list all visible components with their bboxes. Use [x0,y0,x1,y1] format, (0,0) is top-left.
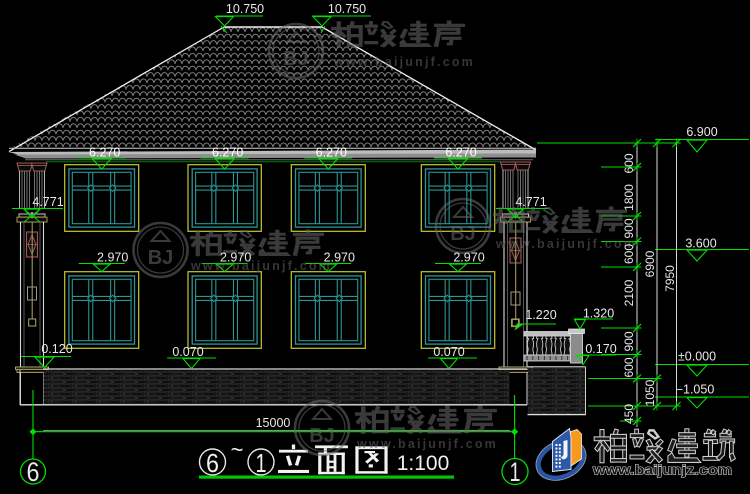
svg-text:2.970: 2.970 [97,251,128,265]
svg-text:−1.050: −1.050 [676,383,715,397]
svg-text:6.270: 6.270 [445,146,476,160]
svg-text:1800: 1800 [622,184,636,211]
svg-text:www.baijunjz.com: www.baijunjz.com [592,462,732,478]
svg-text:www.baijunjf.com: www.baijunjf.com [356,437,498,451]
svg-text:6.270: 6.270 [316,146,347,160]
svg-text:900: 900 [622,331,636,351]
svg-text:1: 1 [510,457,521,487]
svg-text:600: 600 [622,153,636,173]
svg-text:2.970: 2.970 [453,251,484,265]
svg-text:BJ: BJ [148,247,174,269]
svg-text:BJ: BJ [309,425,335,447]
svg-text:~: ~ [231,437,244,462]
svg-text:4.771: 4.771 [32,195,63,209]
svg-text:6: 6 [27,457,40,487]
svg-text:www.baijunjf.com: www.baijunjf.com [333,55,475,69]
svg-text:1050: 1050 [643,379,657,406]
svg-text:BJ: BJ [283,48,309,70]
svg-text:±0.000: ±0.000 [678,350,716,364]
svg-text:10.750: 10.750 [328,2,366,16]
svg-text:450: 450 [622,404,636,424]
svg-text:600: 600 [622,357,636,377]
svg-text:www.baijunjf.com: www.baijunjf.com [190,259,332,273]
svg-text:10.750: 10.750 [226,2,264,16]
svg-text:BJ: BJ [450,223,476,245]
svg-text:6.900: 6.900 [686,125,717,139]
svg-text:3.600: 3.600 [685,237,716,251]
svg-text:6: 6 [206,448,219,478]
svg-text:0.170: 0.170 [585,342,616,356]
svg-text:0.120: 0.120 [41,342,72,356]
svg-text:900: 900 [622,218,636,238]
svg-text:4.771: 4.771 [515,195,546,209]
svg-text:0.070: 0.070 [433,345,464,359]
svg-text:6.270: 6.270 [212,146,243,160]
svg-text:1.320: 1.320 [583,307,614,321]
svg-text:0.070: 0.070 [172,345,203,359]
svg-text:600: 600 [622,244,636,264]
svg-text:6900: 6900 [643,250,657,277]
svg-text:15000: 15000 [256,416,291,430]
svg-text:6.270: 6.270 [89,146,120,160]
svg-text:1.220: 1.220 [525,308,556,322]
svg-text:1: 1 [256,448,267,478]
svg-text:2100: 2100 [622,279,636,306]
svg-text:1:100: 1:100 [397,452,450,475]
svg-text:www.baijunjf.com: www.baijunjf.com [495,237,637,251]
svg-text:2.970: 2.970 [324,251,355,265]
svg-text:7950: 7950 [663,265,677,292]
svg-text:2.970: 2.970 [220,251,251,265]
